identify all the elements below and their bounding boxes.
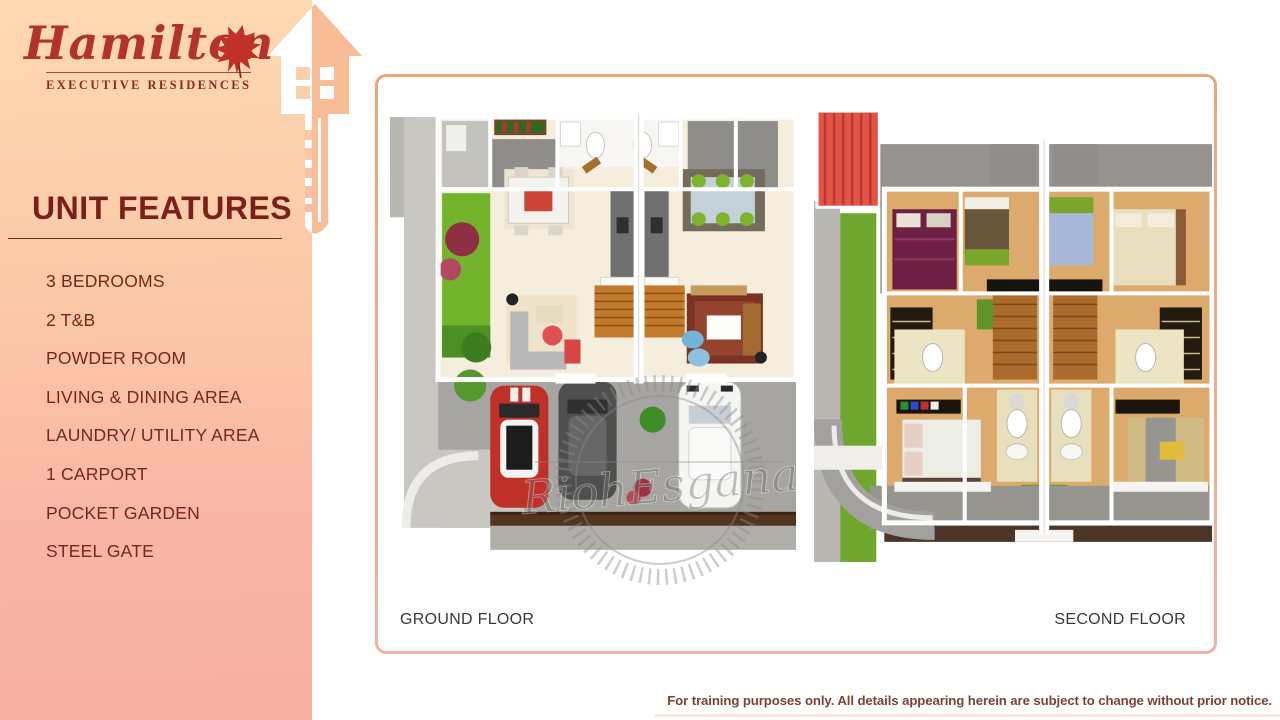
floor-plans-frame: RiohEsgana GROUND FLOOR SECOND FLOOR	[375, 74, 1217, 654]
photographer-watermark: RiohEsgana	[505, 350, 815, 620]
feature-item: 1 CARPORT	[46, 455, 260, 494]
feature-item: POWDER ROOM	[46, 339, 260, 378]
second-floor-label: SECOND FLOOR	[1054, 611, 1186, 629]
feature-list: 3 BEDROOMS2 T&BPOWDER ROOMLIVING & DININ…	[46, 262, 260, 571]
feature-item: LIVING & DINING AREA	[46, 378, 260, 417]
maple-leaf-icon	[203, 17, 272, 86]
feature-item: POCKET GARDEN	[46, 494, 260, 533]
red-roof	[817, 111, 879, 207]
unit-features-title: UNIT FEATURES	[32, 190, 292, 227]
house-key-icon	[265, 2, 365, 242]
feature-item: 2 T&B	[46, 301, 260, 340]
feature-item: STEEL GATE	[46, 532, 260, 571]
bottom-accent-line	[655, 714, 1280, 717]
pocket-garden	[439, 193, 491, 362]
feature-item: LAUNDRY/ UTILITY AREA	[46, 416, 260, 455]
feature-item: 3 BEDROOMS	[46, 262, 260, 301]
slide: Hamilton EXECUTIVE RESIDENCES UNIT FEATU…	[0, 0, 1280, 720]
second-floor-plan-image	[814, 89, 1214, 605]
title-underline	[8, 238, 282, 239]
disclaimer-text: For training purposes only. All details …	[667, 693, 1272, 708]
floor-plans-panel: RiohEsgana GROUND FLOOR SECOND FLOOR	[378, 77, 1214, 651]
ground-floor-label: GROUND FLOOR	[400, 611, 534, 629]
